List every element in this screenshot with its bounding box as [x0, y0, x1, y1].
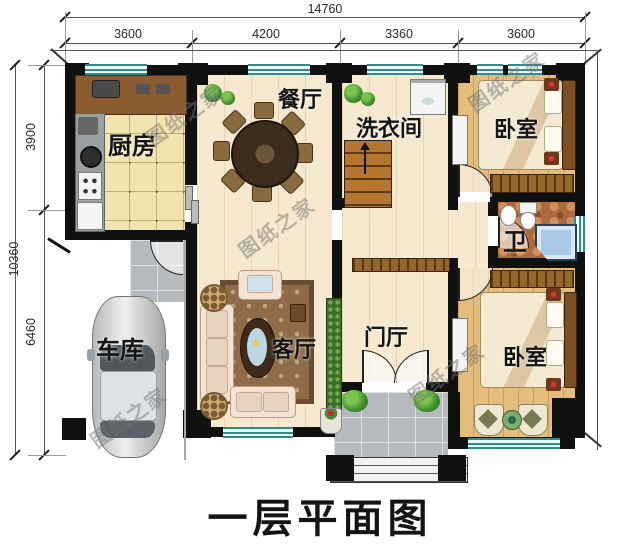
entrance-bush-left — [342, 390, 368, 412]
pillow — [544, 88, 562, 114]
wall-bedroom-top-bottom-b — [490, 192, 585, 202]
dim-top-total: 14760 — [295, 2, 355, 16]
dim-ext — [65, 12, 66, 65]
eave-line-right — [597, 50, 598, 450]
side-table — [290, 304, 306, 322]
nightstand-lamp — [546, 378, 561, 391]
kitchen-stove — [78, 172, 102, 200]
wall-bath-left-a — [488, 202, 498, 216]
porch-column-right — [438, 455, 466, 481]
window-dining — [248, 64, 310, 75]
wall-bay-left — [448, 392, 460, 449]
porch-column-left — [326, 455, 354, 481]
wall-bedroom-top-bottom-a — [448, 192, 458, 202]
label-foyer: 门厅 — [364, 320, 408, 352]
shoe-cabinet — [352, 258, 450, 272]
pillow — [546, 302, 564, 328]
dim-top-seg-4: 3600 — [497, 27, 545, 41]
bay-window-chair — [474, 404, 504, 436]
stairs-arrow-shaft — [364, 146, 366, 174]
window-bay — [468, 438, 560, 449]
car-mirror-right — [161, 349, 169, 361]
label-bedroom-top: 卧室 — [494, 112, 538, 144]
label-living: 客厅 — [272, 332, 316, 364]
eave-line-top — [50, 50, 598, 51]
pilaster — [326, 63, 352, 83]
dim-line-top-segments — [65, 43, 585, 44]
dim-ext — [192, 30, 193, 65]
bay-window-table — [502, 410, 522, 430]
pillow — [546, 340, 564, 366]
label-bedroom-bottom: 卧室 — [503, 340, 547, 372]
label-bathroom: 卫 — [503, 222, 527, 257]
kitchen-cooktop-burner — [136, 84, 150, 94]
kitchen-appliance — [78, 117, 98, 135]
kitchen-slider-panel — [191, 200, 199, 224]
plan-title: 一层平面图 — [0, 486, 640, 544]
loveseat-cushion — [247, 275, 273, 293]
sofa-cushion — [206, 366, 228, 394]
window-kitchen — [85, 64, 147, 75]
kitchen-fridge — [77, 202, 103, 230]
floor-plan: 14760 3600 4200 3360 3600 10360 3900 646… — [0, 0, 640, 550]
headboard-top-bedroom — [562, 80, 576, 170]
nightstand-lamp — [544, 78, 559, 91]
dim-left-total: 10360 — [7, 227, 21, 291]
dim-top-seg-2: 4200 — [242, 27, 290, 41]
nightstand-lamp — [544, 152, 559, 165]
label-laundry: 洗衣间 — [356, 111, 422, 143]
stairs-arrow-head — [360, 142, 370, 150]
dim-ext — [28, 210, 66, 211]
garage-boundary-line — [184, 240, 186, 460]
kitchen-wok-sink — [80, 146, 102, 168]
sofa-cushion — [206, 338, 228, 366]
eave-corner-diagonal — [582, 431, 602, 448]
stairs — [344, 140, 392, 208]
dim-ext — [28, 65, 66, 66]
window-living — [223, 427, 293, 438]
sofa-cushion — [206, 310, 228, 338]
plant-laundry — [361, 92, 375, 106]
dim-left-seg-1: 3900 — [24, 113, 38, 161]
dim-ext — [585, 12, 586, 65]
headboard-bottom-bedroom — [564, 292, 577, 388]
dim-line-top-total — [65, 17, 585, 18]
dim-ext — [28, 455, 66, 456]
wall-left-kitchen — [65, 65, 75, 240]
kitchen-cooktop-burner — [156, 84, 170, 94]
flower-vase — [320, 408, 342, 434]
dim-left-seg-2: 6460 — [24, 308, 38, 356]
sofa-cushion — [236, 392, 262, 412]
bay-window-chair — [518, 404, 548, 436]
wall-corner-block-se — [552, 398, 585, 438]
dining-table — [231, 120, 299, 188]
plant-partition — [326, 298, 342, 410]
dim-ext — [458, 30, 459, 65]
pillow — [544, 126, 562, 152]
label-dining: 餐厅 — [278, 82, 322, 114]
floor-planter — [200, 284, 228, 312]
dresser-top-bedroom — [452, 115, 468, 165]
label-garage: 车库 — [96, 330, 144, 365]
wardrobe-top-bedroom — [490, 174, 574, 193]
coffee-table-glass — [247, 328, 267, 366]
dim-top-seg-1: 3600 — [104, 27, 152, 41]
dim-ext — [340, 30, 341, 65]
car-mirror-left — [87, 349, 95, 361]
wall-dining-laundry — [332, 65, 342, 210]
sofa-cushion — [263, 392, 289, 412]
foyer-floor — [342, 208, 448, 382]
pilaster — [444, 63, 470, 83]
floor-planter — [200, 392, 228, 420]
dim-top-seg-3: 3360 — [375, 27, 423, 41]
window-laundry — [367, 64, 423, 75]
garage-column — [62, 418, 86, 440]
nightstand-lamp — [546, 288, 561, 301]
washing-machine — [410, 79, 446, 115]
wall-living-left — [185, 222, 197, 427]
kitchen-sink — [92, 80, 120, 98]
wardrobe-bottom-bedroom — [490, 270, 574, 288]
dim-line-left-segments — [44, 65, 45, 455]
